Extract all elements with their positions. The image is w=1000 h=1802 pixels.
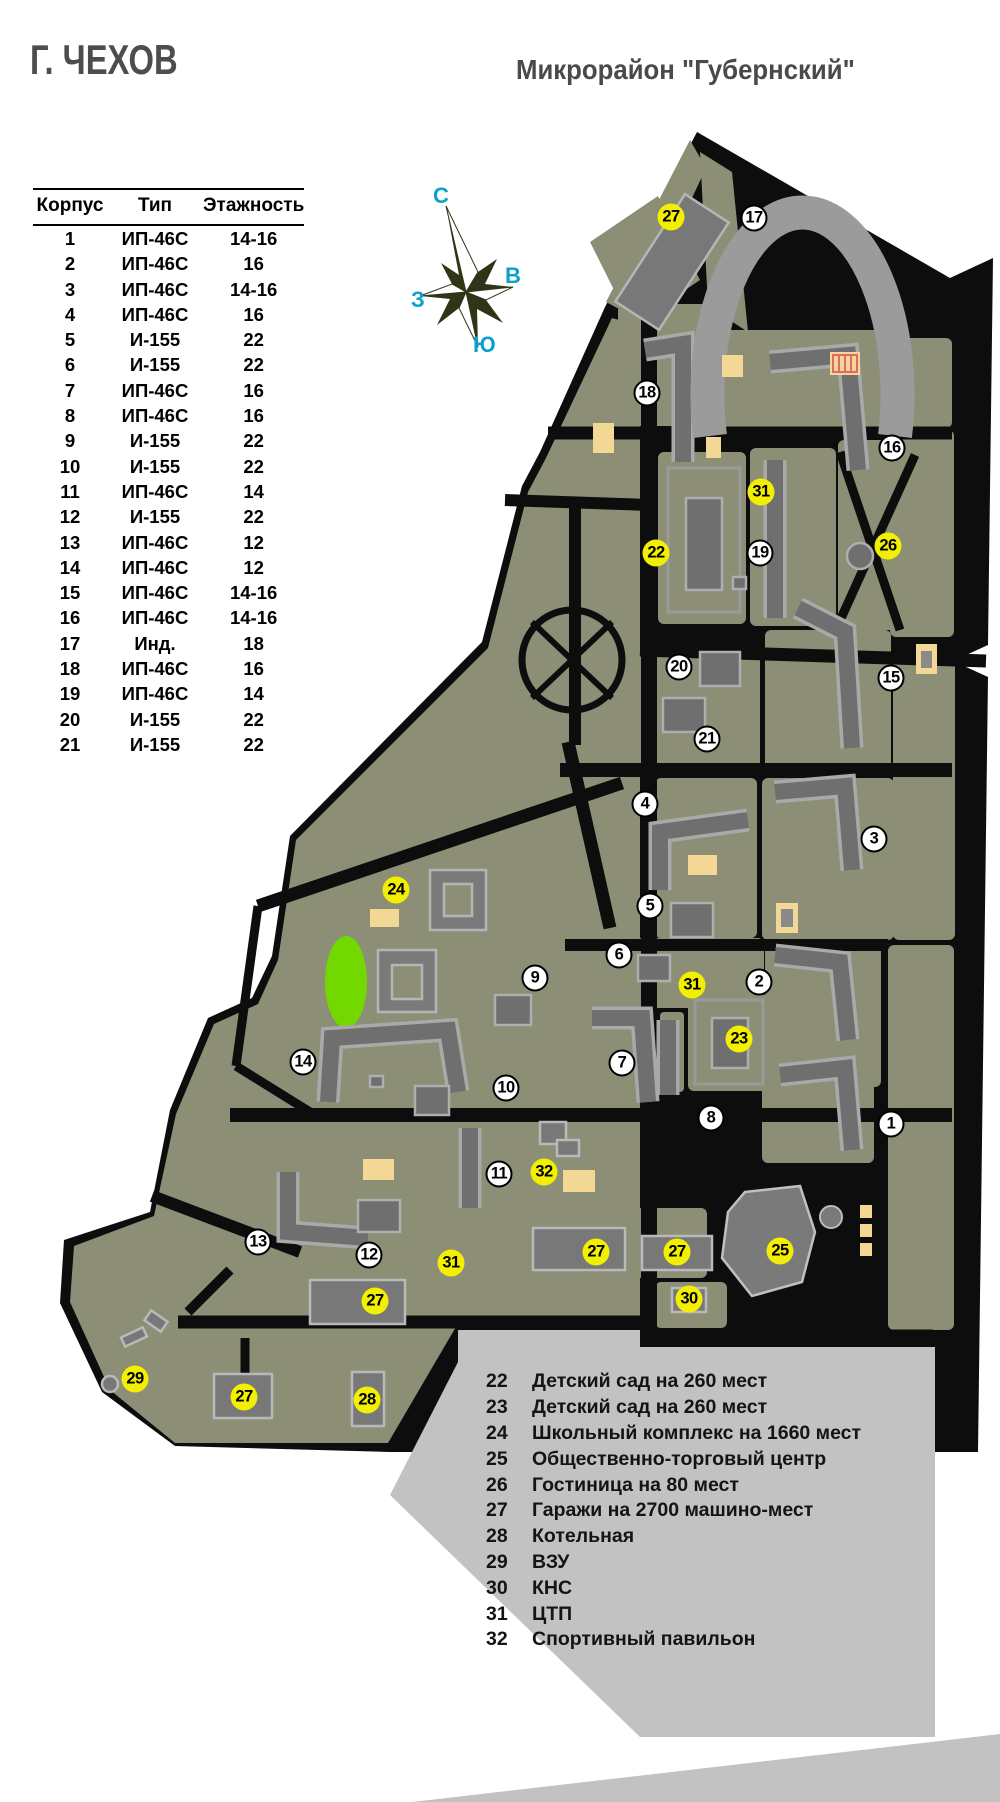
legend-item: 25Общественно-торговый центр [486, 1446, 861, 1472]
table-cell: 8 [33, 403, 107, 428]
table-row: 10И-15522 [33, 454, 304, 479]
table-cell: ИП-46С [107, 681, 203, 706]
table-cell: ИП-46С [107, 251, 203, 276]
map-marker-8: 8 [698, 1105, 725, 1132]
table-cell: 2 [33, 251, 107, 276]
table-cell: 3 [33, 277, 107, 302]
table-cell: 21 [33, 732, 107, 757]
table-cell: ИП-46С [107, 302, 203, 327]
table-row: 6И-15522 [33, 352, 304, 377]
legend-item: 23Детский сад на 260 мест [486, 1395, 861, 1421]
table-row: 16ИП-46С14-16 [33, 605, 304, 630]
table-cell: 12 [203, 555, 304, 580]
map-marker-10: 10 [493, 1075, 520, 1102]
map-marker-9: 9 [522, 965, 549, 992]
site-plan-page: Г. ЧЕХОВ Микрорайон "Губернский" [0, 0, 1000, 1802]
legend-item-label: ЦТП [532, 1603, 572, 1626]
legend-item-label: Общественно-торговый центр [532, 1448, 826, 1471]
table-cell: Инд. [107, 631, 203, 656]
table-cell: 5 [33, 327, 107, 352]
map-marker-26: 26 [875, 533, 902, 560]
map-marker-1: 1 [878, 1111, 905, 1138]
table-cell: ИП-46С [107, 605, 203, 630]
table-row: 20И-15522 [33, 707, 304, 732]
table-cell: 12 [33, 504, 107, 529]
map-marker-29: 29 [122, 1366, 149, 1393]
table-cell: 22 [203, 454, 304, 479]
map-marker-7: 7 [609, 1050, 636, 1077]
table-cell: ИП-46С [107, 479, 203, 504]
legend-item-number: 30 [486, 1577, 516, 1600]
legend-item-number: 27 [486, 1499, 516, 1522]
table-row: 15ИП-46С14-16 [33, 580, 304, 605]
map-marker-15: 15 [878, 665, 905, 692]
table-row: 2ИП-46С16 [33, 251, 304, 276]
table-cell: 14-16 [203, 225, 304, 251]
buildings-table: Корпус Тип Этажность 1ИП-46С14-162ИП-46С… [33, 188, 304, 757]
table-row: 21И-15522 [33, 732, 304, 757]
table-cell: ИП-46С [107, 277, 203, 302]
map-marker-18: 18 [634, 380, 661, 407]
table-cell: 14-16 [203, 277, 304, 302]
table-cell: 16 [203, 251, 304, 276]
table-cell: 22 [203, 327, 304, 352]
legend-item-number: 31 [486, 1603, 516, 1626]
map-marker-32: 32 [531, 1159, 558, 1186]
table-row: 17Инд.18 [33, 631, 304, 656]
map-marker-19: 19 [747, 540, 774, 567]
map-marker-13: 13 [245, 1229, 272, 1256]
compass-north-label: С [433, 183, 449, 209]
table-cell: И-155 [107, 732, 203, 757]
table-row: 4ИП-46С16 [33, 302, 304, 327]
table-cell: И-155 [107, 504, 203, 529]
table-cell: И-155 [107, 352, 203, 377]
table-row: 18ИП-46С16 [33, 656, 304, 681]
table-cell: 17 [33, 631, 107, 656]
table-cell: 10 [33, 454, 107, 479]
table-row: 3ИП-46С14-16 [33, 277, 304, 302]
table-row: 7ИП-46С16 [33, 378, 304, 403]
map-marker-27: 27 [658, 204, 685, 231]
map-marker-4: 4 [632, 791, 659, 818]
map-marker-6: 6 [606, 942, 633, 969]
table-cell: И-155 [107, 327, 203, 352]
legend-item: 27Гаражи на 2700 машино-мест [486, 1498, 861, 1524]
compass-east-label: В [505, 263, 521, 289]
table-cell: ИП-46С [107, 656, 203, 681]
map-marker-27: 27 [583, 1239, 610, 1266]
legend-item-number: 23 [486, 1396, 516, 1419]
legend-item-label: Детский сад на 260 мест [532, 1370, 767, 1393]
legend-item: 24Школьный комплекс на 1660 мест [486, 1421, 861, 1447]
legend-item-label: Детский сад на 260 мест [532, 1396, 767, 1419]
legend-item-number: 24 [486, 1422, 516, 1445]
table-cell: 18 [203, 631, 304, 656]
table-cell: 19 [33, 681, 107, 706]
legend-item-number: 29 [486, 1551, 516, 1574]
table-cell: 22 [203, 352, 304, 377]
legend-item-label: Спортивный павильон [532, 1628, 755, 1651]
map-marker-31: 31 [679, 972, 706, 999]
legend-item-number: 32 [486, 1628, 516, 1651]
legend-item: 29ВЗУ [486, 1550, 861, 1576]
map-marker-24: 24 [383, 877, 410, 904]
table-row: 14ИП-46С12 [33, 555, 304, 580]
map-marker-17: 17 [741, 205, 768, 232]
map-marker-31: 31 [438, 1250, 465, 1277]
table-row: 11ИП-46С14 [33, 479, 304, 504]
legend-item-number: 22 [486, 1370, 516, 1393]
table-cell: ИП-46С [107, 403, 203, 428]
header-etazhnost: Этажность [203, 189, 304, 225]
table-cell: 14 [33, 555, 107, 580]
buildings-table-header: Корпус Тип Этажность [33, 189, 304, 225]
table-cell: 4 [33, 302, 107, 327]
legend-item-number: 25 [486, 1448, 516, 1471]
buildings-table-body: 1ИП-46С14-162ИП-46С163ИП-46С14-164ИП-46С… [33, 225, 304, 757]
district-title: Микрорайон "Губернский" [516, 54, 855, 86]
table-row: 8ИП-46С16 [33, 403, 304, 428]
table-cell: ИП-46С [107, 530, 203, 555]
table-row: 19ИП-46С14 [33, 681, 304, 706]
legend-item-label: ВЗУ [532, 1551, 569, 1574]
map-marker-27: 27 [664, 1239, 691, 1266]
page-title: Г. ЧЕХОВ [30, 36, 178, 84]
compass-west-label: З [411, 287, 425, 313]
map-marker-27: 27 [362, 1288, 389, 1315]
map-marker-22: 22 [643, 540, 670, 567]
table-cell: И-155 [107, 454, 203, 479]
table-cell: 6 [33, 352, 107, 377]
legend-list: 22Детский сад на 260 мест23Детский сад н… [486, 1369, 861, 1653]
legend-item-label: КНС [532, 1577, 572, 1600]
map-marker-3: 3 [861, 826, 888, 853]
table-cell: 22 [203, 732, 304, 757]
table-row: 13ИП-46С12 [33, 530, 304, 555]
legend-item: 22Детский сад на 260 мест [486, 1369, 861, 1395]
table-cell: 14-16 [203, 605, 304, 630]
table-cell: И-155 [107, 707, 203, 732]
legend-item-label: Котельная [532, 1525, 634, 1548]
table-cell: 1 [33, 225, 107, 251]
map-marker-11: 11 [486, 1161, 513, 1188]
table-cell: 7 [33, 378, 107, 403]
table-row: 5И-15522 [33, 327, 304, 352]
map-marker-28: 28 [354, 1387, 381, 1414]
table-cell: ИП-46С [107, 225, 203, 251]
table-cell: ИП-46С [107, 555, 203, 580]
compass-south-label: Ю [473, 332, 496, 358]
map-marker-31: 31 [748, 479, 775, 506]
map-marker-12: 12 [356, 1242, 383, 1269]
table-cell: 16 [203, 656, 304, 681]
table-cell: 20 [33, 707, 107, 732]
table-cell: 9 [33, 428, 107, 453]
table-cell: 22 [203, 504, 304, 529]
table-cell: 22 [203, 707, 304, 732]
map-marker-21: 21 [694, 726, 721, 753]
table-row: 9И-15522 [33, 428, 304, 453]
table-cell: 18 [33, 656, 107, 681]
header-korpus: Корпус [33, 189, 107, 225]
table-cell: ИП-46С [107, 378, 203, 403]
table-row: 12И-15522 [33, 504, 304, 529]
legend-item-label: Гостиница на 80 мест [532, 1474, 739, 1497]
table-cell: 11 [33, 479, 107, 504]
table-cell: 16 [203, 302, 304, 327]
table-cell: 16 [33, 605, 107, 630]
map-marker-14: 14 [290, 1049, 317, 1076]
table-cell: 13 [33, 530, 107, 555]
legend-item: 30КНС [486, 1575, 861, 1601]
table-row: 1ИП-46С14-16 [33, 225, 304, 251]
legend-item-label: Гаражи на 2700 машино-мест [532, 1499, 813, 1522]
map-marker-25: 25 [767, 1238, 794, 1265]
table-cell: 16 [203, 378, 304, 403]
legend-item-number: 26 [486, 1474, 516, 1497]
table-cell: 16 [203, 403, 304, 428]
map-marker-16: 16 [879, 435, 906, 462]
table-cell: ИП-46С [107, 580, 203, 605]
map-marker-2: 2 [746, 969, 773, 996]
legend-item: 31ЦТП [486, 1601, 861, 1627]
table-cell: 14 [203, 479, 304, 504]
table-cell: 22 [203, 428, 304, 453]
legend-item-label: Школьный комплекс на 1660 мест [532, 1422, 861, 1445]
header-tip: Тип [107, 189, 203, 225]
map-marker-27: 27 [231, 1384, 258, 1411]
legend-item: 26Гостиница на 80 мест [486, 1472, 861, 1498]
table-cell: 15 [33, 580, 107, 605]
table-cell: 12 [203, 530, 304, 555]
legend-item: 32Спортивный павильон [486, 1627, 861, 1653]
legend-item: 28Котельная [486, 1524, 861, 1550]
map-marker-23: 23 [726, 1026, 753, 1053]
map-marker-20: 20 [666, 654, 693, 681]
table-cell: 14 [203, 681, 304, 706]
map-marker-5: 5 [637, 893, 664, 920]
map-marker-30: 30 [676, 1286, 703, 1313]
table-cell: 14-16 [203, 580, 304, 605]
table-cell: И-155 [107, 428, 203, 453]
legend-item-number: 28 [486, 1525, 516, 1548]
